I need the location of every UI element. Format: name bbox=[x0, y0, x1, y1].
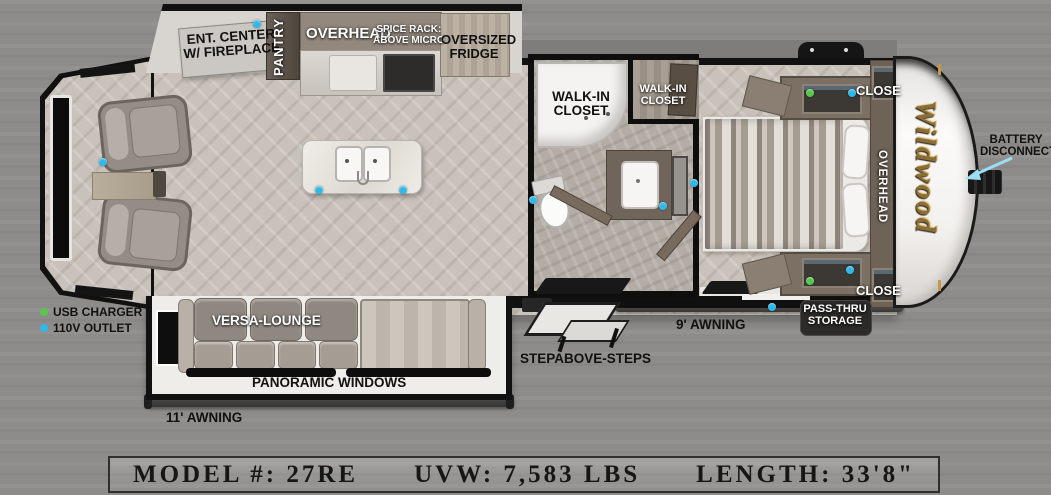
kitchen-counter bbox=[300, 50, 442, 96]
110v-outlet-dot bbox=[848, 89, 856, 97]
sofa-armrest bbox=[468, 299, 486, 371]
110v-outlet-dot bbox=[846, 266, 854, 274]
110v-outlet-dot bbox=[768, 303, 776, 311]
pillow bbox=[841, 124, 871, 180]
battery-disconnect-label: BATTERYDISCONNECT bbox=[980, 134, 1051, 158]
panoramic-windows-label: PANORAMIC WINDOWS bbox=[252, 376, 406, 390]
sofa-seats bbox=[194, 341, 358, 369]
awning-11-label: 11' AWNING bbox=[166, 411, 242, 425]
floorplan-diagram: ENT. CENTERW/ FIREPLACE PANTRY OVERHEAD … bbox=[0, 0, 1051, 495]
spec-length: LENGTH: 33'8" bbox=[696, 461, 915, 489]
steps-label: STEPABOVE-STEPS bbox=[520, 352, 651, 366]
entry-steps bbox=[520, 296, 640, 348]
usb-charger-dot bbox=[806, 89, 814, 97]
closet-bottom-label: CLOSE bbox=[856, 284, 901, 298]
passthru-label: PASS-THRUSTORAGE bbox=[801, 304, 869, 327]
110v-outlet-dot bbox=[690, 179, 698, 187]
legend: USB CHARGER 110V OUTLET bbox=[40, 306, 142, 334]
entry-mat bbox=[534, 278, 631, 294]
110v-outlet-dot bbox=[99, 158, 107, 166]
recliner-chair bbox=[96, 93, 193, 174]
legend-110v-label: 110V OUTLET bbox=[53, 322, 132, 335]
brand-logo: Wildwood bbox=[910, 100, 940, 234]
rear-window bbox=[50, 95, 72, 261]
pillow bbox=[841, 182, 871, 238]
walkin-shower-label: WALK-INCLOSET bbox=[539, 90, 623, 118]
fridge-label: OVERSIZEDFRIDGE bbox=[441, 33, 507, 60]
110v-outlet-dot bbox=[659, 202, 667, 210]
bed bbox=[702, 116, 868, 252]
usb-charger-dot bbox=[806, 277, 814, 285]
spec-bar: MODEL #: 27RE UVW: 7,583 LBS LENGTH: 33'… bbox=[108, 456, 940, 493]
legend-110v-dot bbox=[40, 324, 48, 332]
closet-top-label: CLOSE bbox=[856, 84, 901, 98]
side-table-lamp bbox=[153, 171, 166, 197]
awning-9-label: 9' AWNING bbox=[676, 318, 745, 332]
spice-rack-label: SPICE RACK:ABOVE MICRO bbox=[373, 25, 445, 46]
recliner-chair bbox=[96, 191, 193, 272]
sofa-armrest bbox=[178, 299, 194, 373]
overhead-bedroom-label: OVERHEAD bbox=[876, 150, 888, 223]
110v-outlet-dot bbox=[315, 186, 323, 194]
legend-usb-label: USB CHARGER bbox=[53, 306, 142, 319]
vanity-sink bbox=[621, 161, 659, 209]
walkin-closet-label: WALK-INCLOSET bbox=[633, 84, 693, 107]
110v-outlet-dot bbox=[399, 186, 407, 194]
spec-uvw: UVW: 7,583 LBS bbox=[414, 461, 640, 489]
faucet bbox=[357, 171, 369, 185]
spec-model: MODEL #: 27RE bbox=[133, 461, 358, 489]
bed-blanket bbox=[705, 119, 843, 249]
vanity-mirror bbox=[672, 156, 688, 216]
pantry-label: PANTRY bbox=[272, 18, 286, 76]
lounge-platform bbox=[360, 299, 470, 371]
110v-outlet-dot bbox=[253, 20, 261, 28]
legend-usb-dot bbox=[40, 308, 48, 316]
side-table bbox=[92, 172, 156, 200]
110v-outlet-dot bbox=[529, 196, 537, 204]
stove bbox=[383, 54, 435, 92]
versa-lounge-label: VERSA-LOUNGE bbox=[212, 314, 321, 328]
